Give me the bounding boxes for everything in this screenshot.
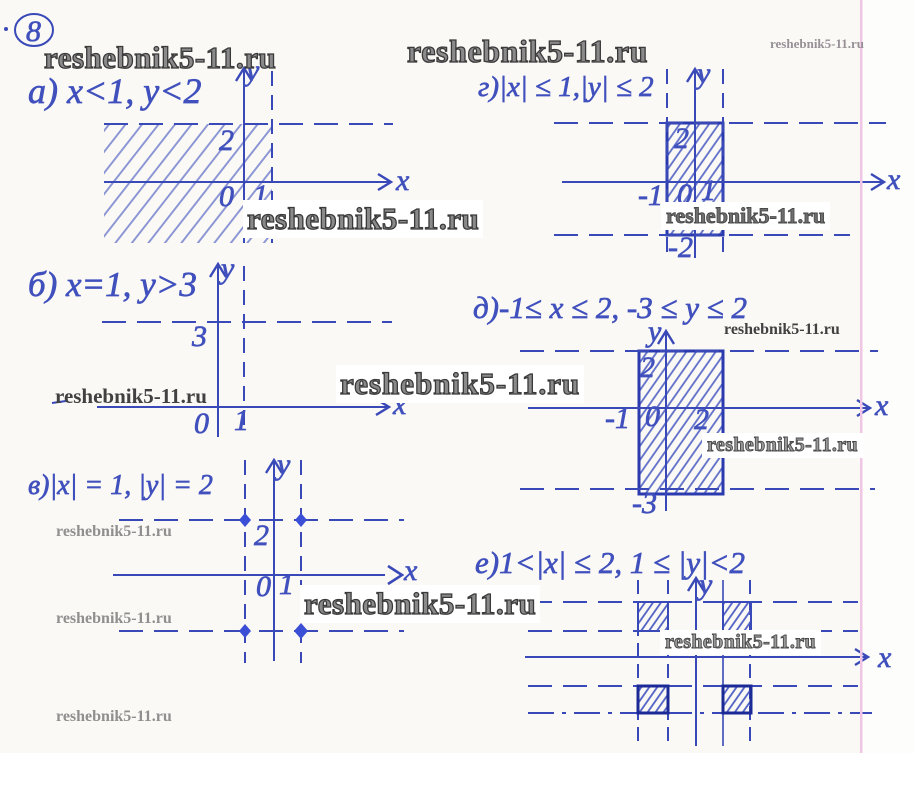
svg-text:-3: -3	[632, 487, 657, 520]
svg-text:0: 0	[219, 180, 234, 213]
svg-text:х: х	[874, 389, 889, 422]
svg-text:2: 2	[674, 122, 689, 155]
svg-text:1: 1	[234, 404, 249, 437]
svg-text:2: 2	[640, 351, 655, 384]
svg-text:2: 2	[254, 519, 269, 552]
svg-text:2: 2	[694, 403, 709, 436]
svg-text:0: 0	[256, 570, 271, 603]
svg-text:е)1<|х| ≤ 2, 1 ≤ |у|<2: е)1<|х| ≤ 2, 1 ≤ |у|<2	[475, 545, 745, 580]
svg-text:y: y	[218, 252, 235, 285]
svg-text:в)|х| = 1, |у| = 2: в)|х| = 1, |у| = 2	[28, 470, 213, 501]
svg-text:-1: -1	[638, 179, 663, 212]
svg-text:а) х<1, у<2: а) х<1, у<2	[28, 71, 202, 111]
svg-text:-1: -1	[605, 402, 630, 435]
svg-text:2: 2	[219, 124, 234, 157]
svg-text:-2: -2	[668, 231, 693, 264]
svg-text:х: х	[395, 164, 410, 197]
svg-text:г)|х| ≤ 1,|у| ≤ 2: г)|х| ≤ 1,|у| ≤ 2	[478, 71, 654, 103]
svg-text:3: 3	[191, 320, 207, 353]
svg-text:y: y	[694, 57, 711, 90]
svg-text:б) х=1, у>3: б) х=1, у>3	[28, 265, 197, 304]
svg-text:y: y	[274, 448, 291, 481]
svg-text:х: х	[886, 163, 901, 196]
svg-text:д)-1≤ х ≤ 2, -3 ≤ у ≤ 2: д)-1≤ х ≤ 2, -3 ≤ у ≤ 2	[473, 290, 747, 325]
svg-text:1: 1	[279, 568, 294, 601]
svg-text:х: х	[877, 641, 892, 674]
svg-text:0: 0	[645, 400, 660, 433]
svg-text:8: 8	[26, 15, 41, 48]
svg-text:0: 0	[194, 407, 209, 440]
svg-text:х: х	[403, 554, 418, 587]
